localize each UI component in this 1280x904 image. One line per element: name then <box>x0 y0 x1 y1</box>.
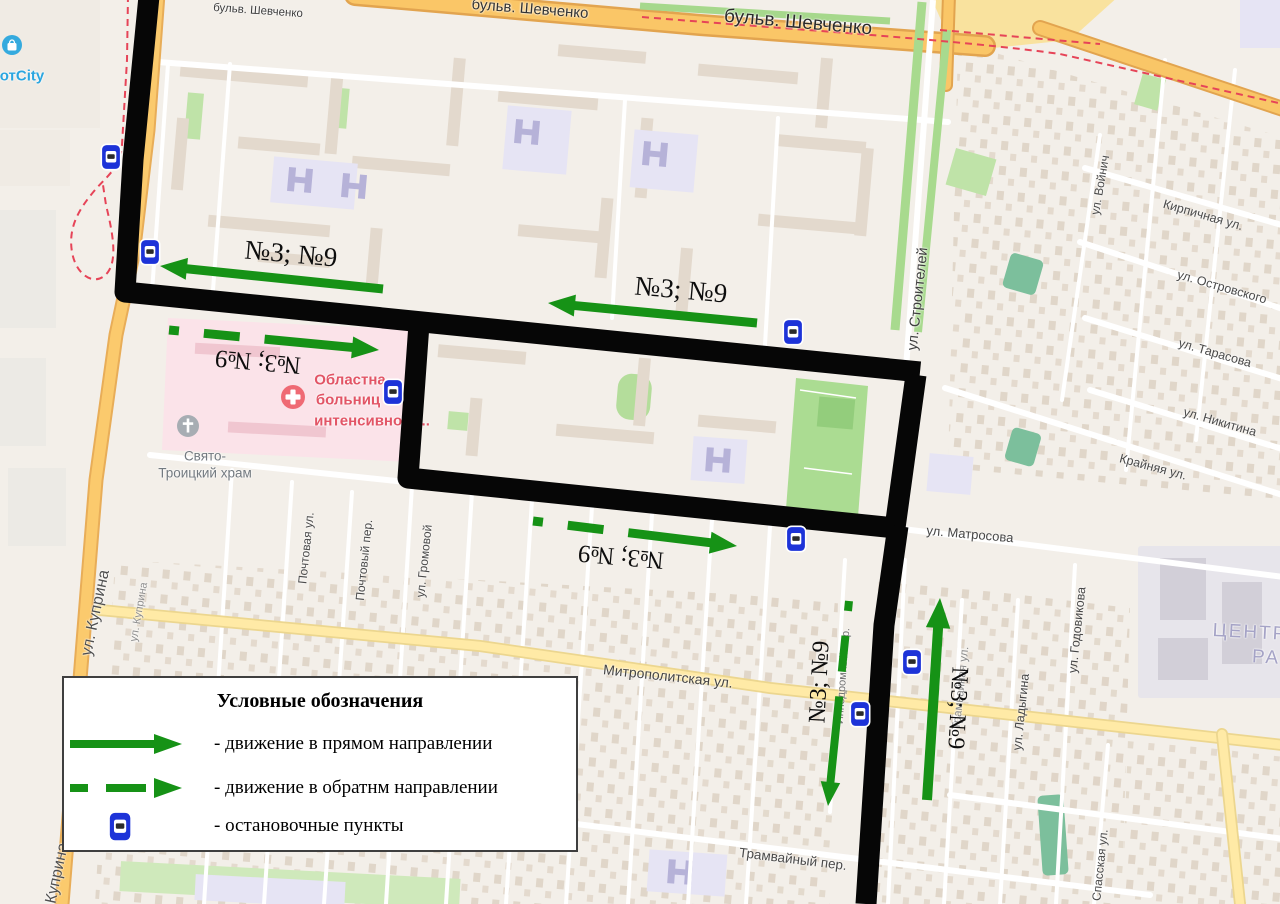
dashed-arrow-icon <box>64 768 184 808</box>
solid-direction-arrow <box>927 624 938 800</box>
legend-box: Условные обозначения - движение в прямом… <box>62 676 578 852</box>
dashed-direction-arrow <box>830 601 849 786</box>
arrow-head <box>709 532 737 554</box>
bus-stop-icon <box>783 319 804 346</box>
solid-direction-arrow <box>571 305 757 323</box>
legend-item-label: - движение в прямом направлении <box>214 733 492 755</box>
arrow-head <box>548 295 576 317</box>
solid-arrow-icon <box>64 724 184 764</box>
dashed-direction-arrow <box>169 330 356 348</box>
solid-direction-arrow <box>183 268 383 289</box>
bus-stop-icon <box>383 379 404 406</box>
bus-stop-icon <box>902 649 923 676</box>
arrow-head <box>926 598 950 629</box>
legend-item-label: - движение в обратнм направлении <box>214 777 498 799</box>
bus-stop-icon <box>101 144 122 171</box>
bus-stop-icon <box>64 806 184 850</box>
route-line <box>125 0 920 372</box>
route-line <box>866 526 898 904</box>
bus-stop-icon <box>786 526 807 553</box>
legend-title: Условные обозначения <box>64 690 576 713</box>
bus-stop-icon <box>850 701 871 728</box>
bus-stop-icon <box>140 239 161 266</box>
legend-item-label: - остановочные пункты <box>214 815 404 837</box>
dashed-direction-arrow <box>533 521 714 543</box>
arrow-head <box>821 781 840 806</box>
arrow-head <box>351 336 379 358</box>
arrow-head <box>160 258 188 280</box>
map-canvas[interactable]: бульв. Шевченкобульв. Шевченкобульв. Шев… <box>0 0 1280 904</box>
